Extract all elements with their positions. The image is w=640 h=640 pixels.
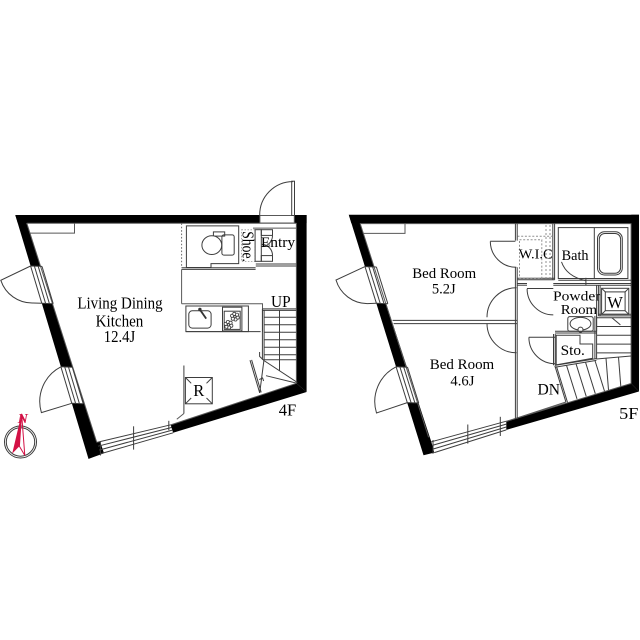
svg-text:4.6J: 4.6J — [450, 374, 474, 390]
svg-text:Shoe.: Shoe. — [238, 231, 257, 262]
svg-text:Entry: Entry — [261, 235, 296, 251]
svg-text:5.2J: 5.2J — [432, 282, 456, 298]
svg-text:4F: 4F — [279, 401, 297, 420]
svg-text:12.4J: 12.4J — [104, 327, 136, 346]
svg-text:N: N — [17, 412, 29, 427]
svg-text:5F: 5F — [619, 404, 638, 423]
svg-text:Bath: Bath — [562, 248, 590, 264]
svg-text:W.I.C: W.I.C — [519, 247, 553, 262]
svg-text:Bed Room: Bed Room — [412, 266, 476, 282]
svg-text:UP: UP — [271, 292, 291, 311]
svg-text:Living Dining: Living Dining — [77, 293, 163, 312]
svg-text:Sto.: Sto. — [561, 343, 585, 359]
svg-text:Room: Room — [561, 302, 598, 317]
svg-text:R: R — [193, 381, 204, 400]
svg-text:Bed Room: Bed Room — [430, 357, 495, 373]
svg-text:DN: DN — [537, 382, 560, 399]
svg-text:W: W — [607, 293, 623, 312]
